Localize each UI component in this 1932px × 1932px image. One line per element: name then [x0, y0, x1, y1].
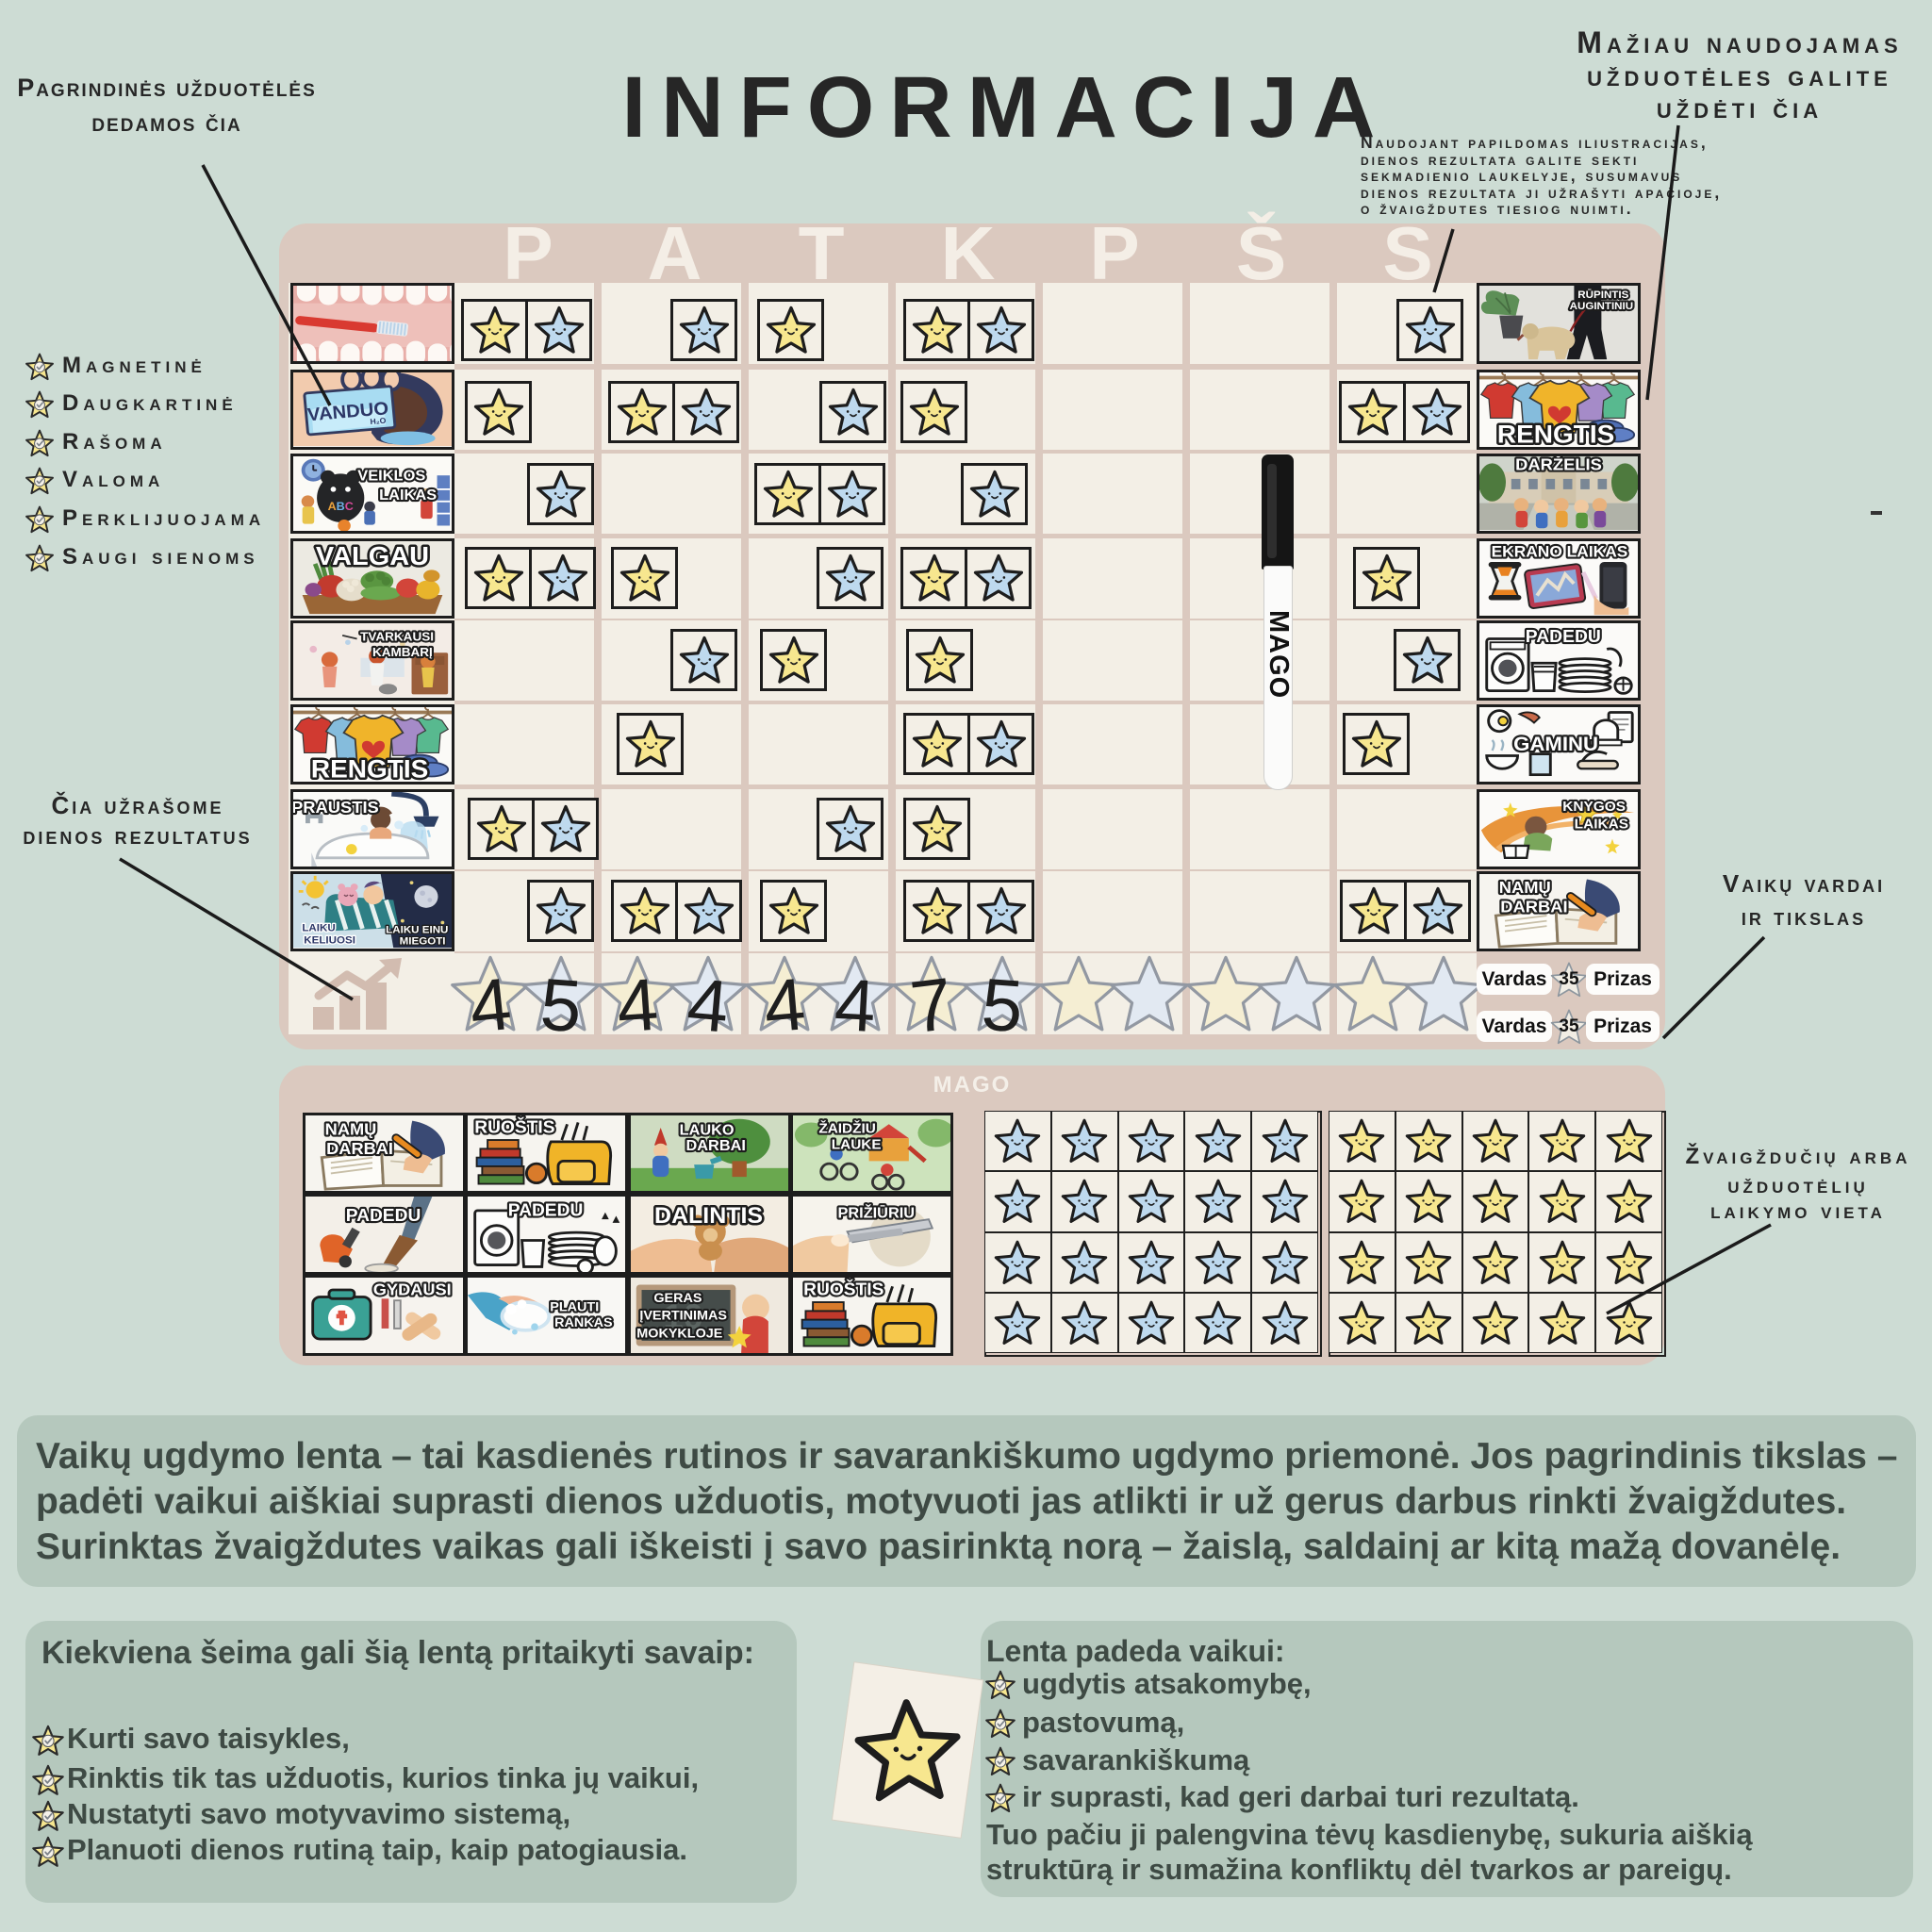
svg-text:DARBAI: DARBAI	[326, 1139, 393, 1158]
svg-text:PADEDU: PADEDU	[508, 1201, 584, 1221]
svg-text:PLAUTI: PLAUTI	[551, 1300, 600, 1315]
svg-text:KNYGOS: KNYGOS	[1562, 800, 1626, 816]
svg-text:EKRANO LAIKAS: EKRANO LAIKAS	[1492, 543, 1628, 561]
svg-text:PRIŽIŪRIU: PRIŽIŪRIU	[837, 1204, 914, 1222]
svg-text:KAMBARĮ: KAMBARĮ	[372, 645, 433, 659]
svg-text:GERAS: GERAS	[653, 1291, 702, 1306]
svg-text:PADEDU: PADEDU	[1526, 627, 1601, 646]
svg-text:LAIKAS: LAIKAS	[379, 487, 437, 504]
svg-text:TVARKAUSI: TVARKAUSI	[360, 630, 434, 644]
svg-text:VALGAU: VALGAU	[316, 541, 429, 570]
svg-text:RUOŠTIS: RUOŠTIS	[803, 1280, 883, 1300]
svg-text:ABC: ABC	[328, 500, 354, 513]
svg-text:H₂O: H₂O	[370, 416, 387, 426]
svg-text:ĮVERTINIMAS: ĮVERTINIMAS	[639, 1309, 727, 1324]
svg-text:PADEDU: PADEDU	[346, 1206, 421, 1226]
svg-text:MIEGOTI: MIEGOTI	[400, 936, 446, 948]
svg-text:AUGINTINIU: AUGINTINIU	[1570, 301, 1633, 312]
svg-text:GYDAUSI: GYDAUSI	[373, 1280, 452, 1299]
svg-text:LAIKU EINU: LAIKU EINU	[386, 925, 448, 936]
svg-text:KELIUOSI: KELIUOSI	[304, 935, 355, 947]
svg-text:LAUKO: LAUKO	[679, 1122, 734, 1139]
svg-text:RENGTIS: RENGTIS	[1497, 420, 1614, 447]
svg-text:GAMINU: GAMINU	[1513, 732, 1598, 754]
svg-text:DARŽELIS: DARŽELIS	[1515, 456, 1602, 474]
svg-text:LAIKU: LAIKU	[302, 923, 335, 934]
svg-text:RUOŠTIS: RUOŠTIS	[475, 1117, 555, 1138]
svg-text:VEIKLOS: VEIKLOS	[357, 469, 425, 485]
svg-text:ŽAIDŽIU: ŽAIDŽIU	[818, 1120, 876, 1137]
svg-text:NAMŲ: NAMŲ	[325, 1120, 377, 1139]
svg-text:DARBAI: DARBAI	[685, 1137, 745, 1154]
svg-text:LAIKAS: LAIKAS	[1575, 817, 1628, 833]
svg-text:MOKYKLOJE: MOKYKLOJE	[636, 1326, 722, 1341]
svg-text:RŪPINTIS: RŪPINTIS	[1577, 289, 1628, 301]
svg-text:LAUKE: LAUKE	[832, 1137, 882, 1153]
svg-text:DALINTIS: DALINTIS	[654, 1203, 763, 1229]
svg-text:RANKAS: RANKAS	[554, 1315, 613, 1330]
